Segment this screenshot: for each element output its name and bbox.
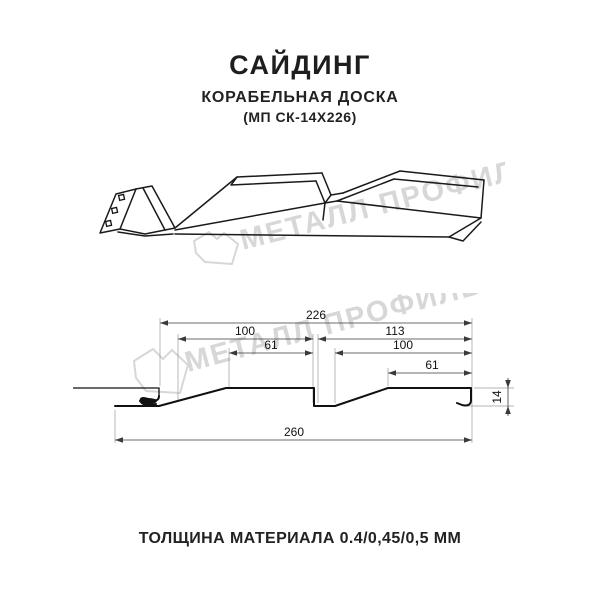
dim-upper-left: 100 (235, 324, 255, 338)
watermark-3d: МЕТАЛЛ ПРОФИЛЬ (194, 150, 505, 264)
dim-top-total: 226 (306, 308, 326, 322)
watermark-text: МЕТАЛЛ ПРОФИЛЬ (237, 150, 505, 257)
lock-hook (139, 398, 157, 404)
profile-cross-section-drawing: МЕТАЛЛ ПРОФИЛЬ 226 100 (58, 293, 548, 458)
profile-outline (73, 388, 471, 406)
dim-bottom-total: 260 (284, 425, 304, 439)
dim-upper-right: 113 (385, 324, 404, 338)
metall-profil-logo-icon (194, 232, 238, 264)
metall-profil-logo-icon (134, 349, 188, 393)
watermark-text: МЕТАЛЛ ПРОФИЛЬ (182, 293, 486, 379)
mounting-flange (100, 189, 136, 233)
page-title: САЙДИНГ (0, 50, 600, 81)
dim-inner-right: 100 (393, 338, 413, 352)
dim-inner-left: 61 (264, 338, 278, 352)
dim-right-flat: 61 (425, 358, 439, 372)
model-code: (МП СК-14Х226) (0, 109, 600, 125)
dim-profile-height: 14 (490, 390, 504, 404)
profile-3d-drawing: МЕТАЛЛ ПРОФИЛЬ (85, 150, 505, 270)
material-thickness-label: ТОЛЩИНА МАТЕРИАЛА 0.4/0,45/0,5 ММ (0, 530, 600, 548)
product-subtitle: КОРАБЕЛЬНАЯ ДОСКА (0, 89, 600, 107)
